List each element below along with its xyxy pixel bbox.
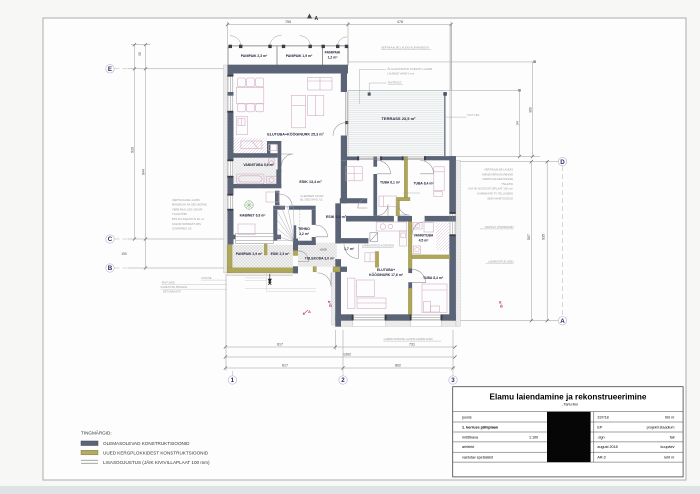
svg-text:PANIPAIK 1,9 m²: PANIPAIK 1,9 m² bbox=[286, 54, 313, 58]
svg-text:TSILETID: TSILETID bbox=[501, 182, 513, 186]
svg-text:337/18: 337/18 bbox=[597, 415, 608, 419]
svg-text:KABINET 6,9 m²: KABINET 6,9 m² bbox=[240, 213, 267, 217]
svg-text:OSVIEPRES LIS: OSVIEPRES LIS bbox=[172, 227, 192, 231]
svg-text:A: A bbox=[560, 318, 565, 325]
svg-text:E: E bbox=[108, 66, 112, 73]
svg-text:90: 90 bbox=[138, 52, 142, 56]
svg-text:Elamu laiendamine ja rekonstr: Elamu laiendamine ja rekonstrueerimine bbox=[490, 392, 647, 401]
svg-text:projekti staadium: projekti staadium bbox=[647, 425, 675, 429]
svg-text:TULEKODA 3,0 m²: TULEKODA 3,0 m² bbox=[305, 256, 335, 260]
svg-text:vastutav spetsialist: vastutav spetsialist bbox=[462, 455, 493, 459]
svg-text:PUIT LIIG: PUIT LIIG bbox=[468, 113, 480, 117]
svg-text:PANIPAIK 2,9 m²: PANIPAIK 2,9 m² bbox=[236, 252, 263, 256]
svg-text:kuupäev: kuupäev bbox=[661, 445, 675, 449]
svg-text:2: 2 bbox=[341, 377, 345, 384]
svg-text:TEHNO: TEHNO bbox=[298, 227, 310, 231]
svg-text:1: 1 bbox=[231, 377, 235, 384]
svg-text:PUITPOST: PUITPOST bbox=[388, 80, 402, 84]
svg-text:B: B bbox=[108, 265, 113, 272]
svg-text:leht nr: leht nr bbox=[664, 455, 675, 459]
svg-text:LISASOOJUSTUS (JÄIK KIVIVILLAP: LISASOOJUSTUS (JÄIK KIVIVILLAPLAAT 100 m… bbox=[103, 459, 210, 465]
svg-text:1:100: 1:100 bbox=[529, 435, 538, 439]
svg-text:VANNITUBA 5,6 m²: VANNITUBA 5,6 m² bbox=[243, 163, 274, 167]
svg-text:C: C bbox=[108, 236, 113, 243]
svg-text:TUBA 8,4 m²: TUBA 8,4 m² bbox=[413, 181, 434, 185]
svg-text:TUBA 6,1 m²: TUBA 6,1 m² bbox=[380, 180, 401, 184]
svg-text:LAMMUTATUD SEIN: LAMMUTATUD SEIN bbox=[488, 259, 513, 263]
svg-text:1,2 m²: 1,2 m² bbox=[328, 56, 339, 60]
svg-text:BL-2002 9H-01 UL: BL-2002 9H-01 UL bbox=[300, 198, 323, 202]
svg-text:RETSNAKASTI: RETSNAKASTI bbox=[163, 289, 181, 293]
svg-text:KATUSE: KATUSE bbox=[201, 276, 211, 280]
svg-text:LAMMUTATAKSE LAUDIS AARDE DING: LAMMUTATAKSE LAUDIS AARDE DING bbox=[384, 337, 433, 341]
svg-text:VERTIKAALNE LAUDIS: VERTIKAALNE LAUDIS bbox=[484, 168, 513, 172]
svg-text:1,7 m²: 1,7 m² bbox=[344, 247, 355, 251]
svg-text:VERB RAAL OES JAISVE: VERB RAAL OES JAISVE bbox=[172, 207, 203, 211]
svg-text:joonis: joonis bbox=[461, 415, 472, 419]
svg-text:TINGMÄRGID:: TINGMÄRGID: bbox=[81, 429, 112, 435]
svg-text:KASUR OMNIVEST WIN: KASUR OMNIVEST WIN bbox=[172, 222, 201, 226]
svg-text:4,5 m²: 4,5 m² bbox=[419, 238, 430, 242]
svg-text:KUMMIKATE TV TELLISSEIN: KUMMIKATE TV TELLISSEIN bbox=[477, 192, 513, 196]
svg-text:ELUTUBA+KÖÖGINURK 25,3 m²: ELUTUBA+KÖÖGINURK 25,3 m² bbox=[267, 131, 324, 136]
svg-text:KAHETISTE PINNADA: KAHETISTE PINNADA bbox=[161, 285, 188, 289]
svg-text:august 2018: august 2018 bbox=[597, 445, 617, 449]
svg-text:.dgn: .dgn bbox=[597, 435, 604, 439]
svg-text:TUBA 8,4 m²: TUBA 8,4 m² bbox=[423, 276, 444, 280]
svg-text:755: 755 bbox=[285, 20, 291, 24]
svg-text:+0.00: +0.00 bbox=[319, 248, 327, 252]
svg-text:mõõtkava: mõõtkava bbox=[462, 435, 479, 439]
svg-text:AR-2: AR-2 bbox=[597, 455, 605, 459]
svg-text:507: 507 bbox=[527, 234, 531, 240]
svg-text:VANNITUBA: VANNITUBA bbox=[414, 233, 434, 237]
svg-text:BPS 30 UUELISTUS SIL nn: BPS 30 UUELISTUS SIL nn bbox=[172, 217, 205, 221]
svg-text:SEIN VAHETOODUD: SEIN VAHETOODUD bbox=[487, 196, 513, 200]
svg-text:A: A bbox=[308, 309, 311, 314]
svg-text:töö nr: töö nr bbox=[665, 415, 675, 419]
svg-text:VERTIKAALSED RSGNE: VERTIKAALSED RSGNE bbox=[482, 177, 513, 181]
svg-text:LAMMUTATUD KORSTEN: LAMMUTATUD KORSTEN bbox=[362, 244, 394, 248]
svg-text:VERTIKAALNE LAUDIS KUIVAMISEGA: VERTIKAALNE LAUDIS KUIVAMISEGA bbox=[381, 46, 429, 50]
svg-text:arhitekt: arhitekt bbox=[462, 445, 474, 449]
svg-text:ESIK 2,3 m²: ESIK 2,3 m² bbox=[271, 252, 291, 256]
svg-text:PANIPAIK 2,3 m²: PANIPAIK 2,3 m² bbox=[241, 54, 268, 58]
svg-text:935: 935 bbox=[542, 234, 546, 240]
svg-text:94: 94 bbox=[515, 121, 519, 125]
svg-text:A: A bbox=[315, 16, 319, 22]
svg-text:731: 731 bbox=[409, 343, 415, 347]
svg-text:MÄNDIKON NA OED WORVE: MÄNDIKON NA OED WORVE bbox=[172, 203, 207, 207]
svg-text:478: 478 bbox=[397, 20, 403, 24]
svg-text:617: 617 bbox=[277, 343, 283, 347]
svg-text:944: 944 bbox=[142, 169, 146, 175]
svg-text:KÖÖGINURK 17,6 m²: KÖÖGINURK 17,6 m² bbox=[369, 272, 404, 277]
svg-text:MÄNDIVÄRVIGA RBGNE: MÄNDIVÄRVIGA RBGNE bbox=[482, 172, 513, 176]
svg-text:ELUTUBA+: ELUTUBA+ bbox=[377, 268, 395, 272]
svg-text:3,2 m²: 3,2 m² bbox=[299, 232, 310, 236]
svg-text:LAUDISE VAHE 5 mm: LAUDISE VAHE 5 mm bbox=[387, 72, 415, 76]
svg-text:910: 910 bbox=[131, 147, 135, 153]
svg-text:617: 617 bbox=[282, 364, 288, 368]
svg-text:1. korruse põhiplaan: 1. korruse põhiplaan bbox=[462, 425, 499, 429]
svg-text:1302: 1302 bbox=[343, 353, 351, 357]
svg-text:EP: EP bbox=[597, 425, 602, 429]
svg-text:PANIPAIK: PANIPAIK bbox=[325, 51, 341, 55]
svg-text:PUITUVED: PUITUVED bbox=[162, 280, 175, 284]
svg-text:ESIK 6,0 m²: ESIK 6,0 m² bbox=[326, 215, 347, 219]
svg-text:D: D bbox=[560, 159, 565, 166]
svg-text:802: 802 bbox=[395, 364, 401, 368]
svg-text:, Tartu linn: , Tartu linn bbox=[562, 403, 579, 407]
svg-text:ÜLEMISED TASAP: ÜLEMISED TASAP bbox=[300, 194, 323, 198]
svg-text:ESIK 13,4 m²: ESIK 13,4 m² bbox=[299, 180, 322, 184]
svg-text:OLEMASOLEVAD KONSTRUKTSIOONID: OLEMASOLEVAD KONSTRUKTSIOONID bbox=[103, 441, 190, 446]
svg-text:UUED KERGPLOKKIDEST KONSTRUKTS: UUED KERGPLOKKIDEST KONSTRUKTSIOONID bbox=[103, 451, 209, 456]
svg-text:190: 190 bbox=[121, 252, 127, 256]
svg-text:fail: fail bbox=[670, 435, 675, 439]
svg-text:VERTIKAALNE LAUDIS: VERTIKAALNE LAUDIS bbox=[172, 198, 200, 202]
svg-text:KIVI 30 SOOJUSTUSPLAAT 100 mm: KIVI 30 SOOJUSTUSPLAAT 100 mm bbox=[468, 187, 513, 191]
svg-text:960: 960 bbox=[528, 107, 532, 113]
svg-text:TERRASS 23,5 m²: TERRASS 23,5 m² bbox=[381, 116, 416, 121]
svg-text:3: 3 bbox=[451, 377, 455, 384]
